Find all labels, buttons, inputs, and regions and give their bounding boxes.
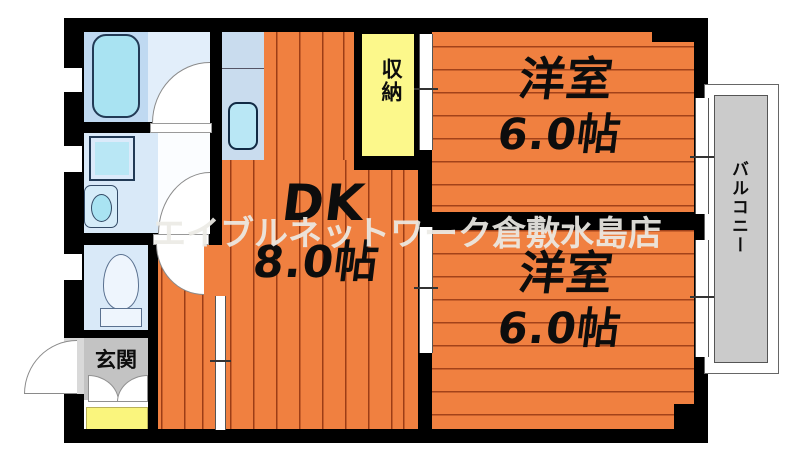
watermark: エイブルネットワーク倉敷水島店 (152, 206, 662, 255)
toilet (103, 254, 139, 310)
balcony-window (695, 98, 709, 214)
entrance-label: 玄関 (86, 344, 146, 374)
wall-closet-bottom (354, 158, 418, 170)
wall-bottom (64, 429, 708, 443)
washing-machine-pan (89, 136, 135, 181)
kitchen-sink (228, 102, 258, 150)
bedroom-size: 6.0帖 (425, 108, 694, 162)
window (64, 66, 82, 94)
toilet-tank (100, 308, 142, 327)
window (64, 252, 82, 282)
washbasin (84, 185, 118, 228)
pillar-top-right (652, 18, 694, 42)
wall-toilet-bottom (84, 330, 148, 338)
bedroom-top-label: 洋室 6.0帖 (425, 50, 701, 162)
dk-floor (264, 30, 354, 160)
wall-closet-left (354, 30, 362, 160)
slide-tick (210, 360, 231, 362)
bedroom-bottom-label: 洋室 6.0帖 (425, 244, 701, 356)
bathtub (92, 34, 140, 118)
balcony-label: バルコニー (726, 160, 751, 255)
bedroom-name: 洋室 (432, 50, 701, 108)
washbasin-bowl (91, 194, 112, 222)
sliding-door (215, 296, 226, 430)
wall-hall-left (148, 245, 158, 430)
floor-plan: バルコニー (0, 0, 800, 465)
kitchen-counter-divider (222, 68, 264, 69)
bedroom-size: 6.0帖 (425, 302, 694, 356)
window (64, 144, 82, 174)
closet-label: 収納 (376, 58, 406, 104)
door-threshold (150, 123, 212, 133)
entrance-door-arc (24, 340, 77, 394)
wall-top (64, 18, 708, 32)
slide-tick (690, 156, 714, 158)
pillar-bottom-right (674, 404, 694, 443)
